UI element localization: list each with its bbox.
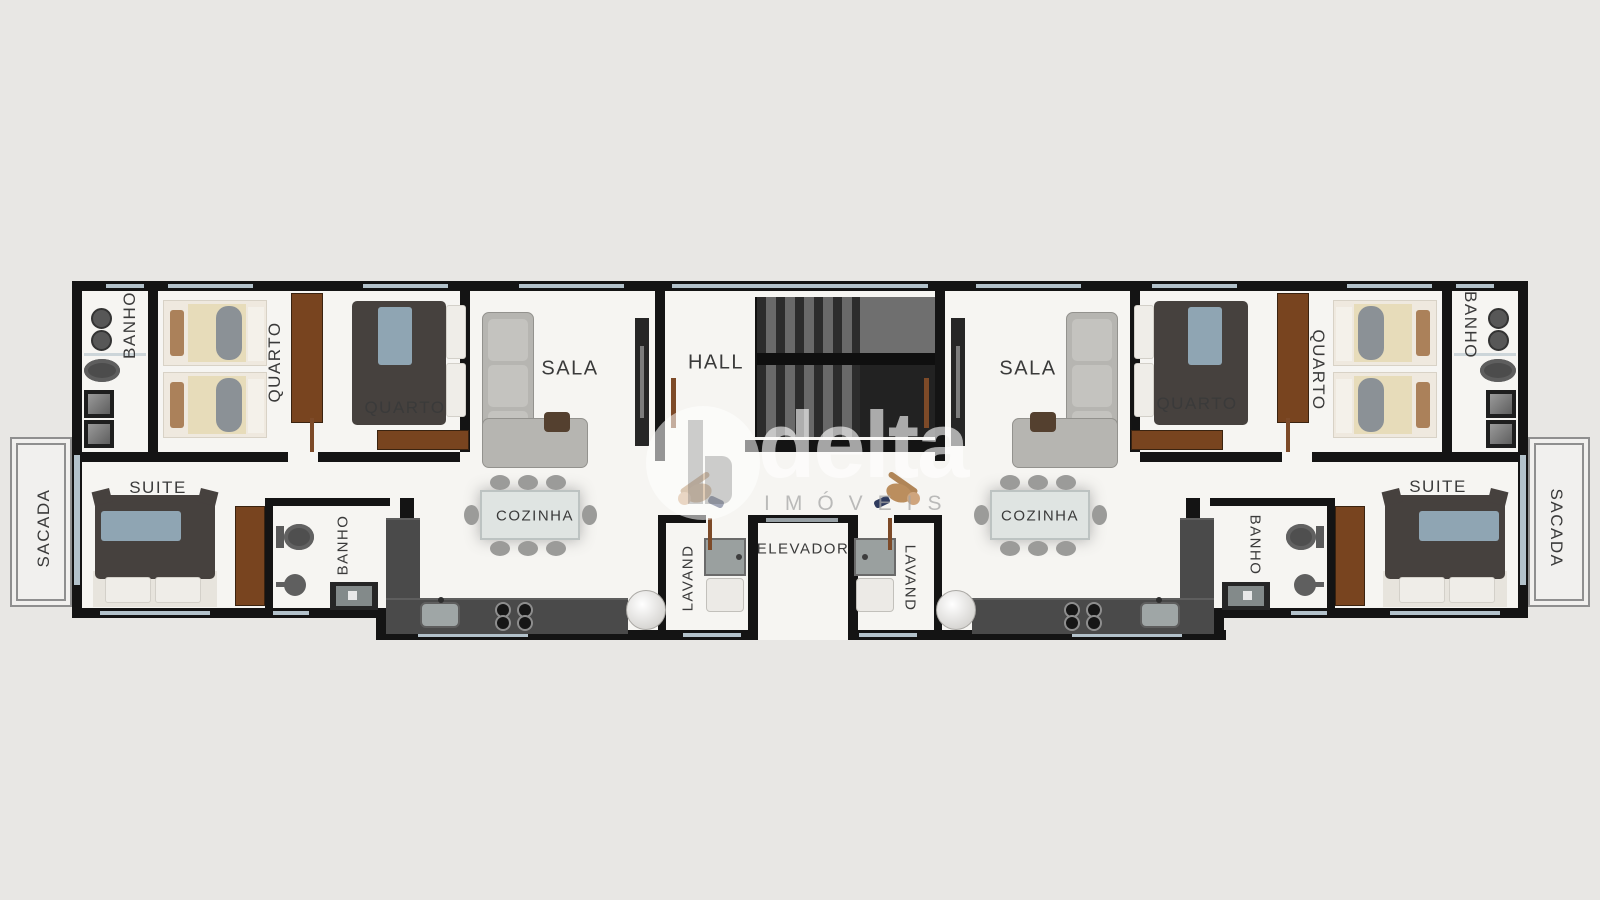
room-label-sacada-right: SACADA [1546, 489, 1566, 568]
window [168, 284, 253, 288]
room-label-hall: HALL [688, 352, 744, 375]
shower-box [330, 582, 378, 610]
cooktop-burner [519, 604, 531, 616]
window [1152, 284, 1237, 288]
toilet [284, 524, 314, 550]
suite-bed-left [93, 495, 217, 607]
room-label-sala-right: SALA [999, 358, 1056, 381]
room-label-lavand-right: LAVAND [902, 545, 919, 612]
room-label-banho-top-left: BANHO [120, 291, 140, 359]
dining-chair [518, 541, 538, 556]
balcony-door-left [74, 455, 80, 585]
room-label-lavand-left: LAVAND [680, 545, 697, 612]
door-leaf [888, 518, 892, 550]
delta-logo-icon [646, 406, 760, 520]
wall-kitchen-stub-right [1186, 498, 1200, 520]
window [273, 611, 309, 615]
toilet-tank [1316, 526, 1324, 548]
kitchen-sink-right [1140, 602, 1180, 628]
sink-bowl [1488, 330, 1509, 351]
door-leaf [310, 418, 314, 452]
wall-suite-banho-left [265, 498, 273, 610]
twin-bed [1333, 372, 1437, 438]
wardrobe-suite-right [1335, 506, 1365, 606]
wall-mid-right-b [1140, 452, 1282, 462]
kitchen-sink-left [420, 602, 460, 628]
toilet [84, 359, 120, 382]
shower-box [84, 390, 114, 418]
dining-chair [546, 475, 566, 490]
window [1456, 284, 1494, 288]
wall-twin-banho-right [1442, 291, 1452, 452]
wall-elevator-right [848, 515, 858, 640]
dining-chair [1000, 475, 1020, 490]
wardrobe-left [291, 293, 323, 423]
dresser-left [377, 430, 469, 450]
faucet [438, 597, 444, 603]
window [363, 284, 448, 288]
dining-chair [1056, 475, 1076, 490]
cooktop-burner [1066, 617, 1078, 629]
kitchen-counter-right-vertical [1180, 518, 1214, 604]
water-heater-right [936, 590, 976, 630]
stair-landing [860, 297, 935, 353]
room-label-cozinha-left: COZINHA [496, 508, 574, 525]
dining-chair [1092, 505, 1107, 525]
cooktop-burner [1066, 604, 1078, 616]
room-label-quarto-twin-right: QUARTO [1308, 329, 1328, 410]
sink-bowl [91, 330, 112, 351]
tv-panel-left [635, 318, 649, 446]
wall-mid-left-b [318, 452, 460, 462]
elevator-door [766, 518, 838, 522]
cooktop-burner [1088, 604, 1100, 616]
wardrobe-right [1277, 293, 1309, 423]
window [976, 284, 1081, 288]
dining-chair [518, 475, 538, 490]
window [1390, 611, 1500, 615]
wall-banho-twin-left [148, 291, 158, 452]
room-label-quarto-double-left: QUARTO [364, 398, 445, 418]
dining-chair [582, 505, 597, 525]
window [100, 611, 210, 615]
room-label-banho-suite-right: BANHO [1247, 515, 1264, 576]
toilet [1286, 524, 1316, 550]
dresser-right [1131, 430, 1223, 450]
room-label-sala-left: SALA [541, 358, 598, 381]
sink-bowl [1488, 308, 1509, 329]
wall-kitchen-stub-left [400, 498, 414, 520]
shower-box [1486, 420, 1516, 448]
pedestal-sink [284, 574, 306, 596]
twin-bed [163, 372, 267, 438]
dining-chair [974, 505, 989, 525]
sofa-chaise-left [482, 418, 588, 468]
window [1291, 611, 1327, 615]
watermark-tagline: IMÓVEIS [764, 492, 957, 516]
sink-bowl [91, 308, 112, 329]
wall-mid-right-a [1312, 452, 1518, 462]
wall-banho-suite-top-left [265, 498, 390, 506]
dining-chair [1000, 541, 1020, 556]
sofa-cushion [544, 412, 570, 432]
pedestal-sink [1294, 574, 1316, 596]
dining-chair [490, 541, 510, 556]
twin-bed [163, 300, 267, 366]
stair-flight-upper [757, 297, 860, 353]
cooktop-burner [1088, 617, 1100, 629]
wall-banho-suite-top-right [1210, 498, 1335, 506]
kitchen-counter-left-vertical [386, 518, 420, 604]
laundry-sink-right [856, 578, 894, 612]
watermark-brand: delta [758, 398, 967, 492]
sofa-chaise-right [1012, 418, 1118, 468]
room-label-suite-right: SUITE [1409, 477, 1467, 497]
faucet [1156, 597, 1162, 603]
dining-chair [1056, 541, 1076, 556]
window [859, 633, 917, 637]
shower-box [84, 420, 114, 448]
dining-chair [546, 541, 566, 556]
water-heater-left [626, 590, 666, 630]
dining-chair [1028, 541, 1048, 556]
dining-chair [1028, 475, 1048, 490]
pedestal-sink-arm [276, 582, 286, 587]
balcony-door-right [1520, 455, 1526, 585]
twin-bed [1333, 300, 1437, 366]
shower-box [1486, 390, 1516, 418]
room-label-banho-suite-left: BANHO [335, 515, 352, 576]
window [519, 284, 624, 288]
shower-box [1222, 582, 1270, 610]
room-label-cozinha-right: COZINHA [1001, 508, 1079, 525]
window [106, 284, 144, 288]
wall-suite-banho-right [1327, 498, 1335, 610]
suite-bed-right [1383, 495, 1507, 607]
cooktop-burner [497, 604, 509, 616]
room-label-sacada-left: SACADA [34, 489, 54, 568]
room-label-quarto-double-right: QUARTO [1156, 394, 1237, 414]
wall-elevator-left [748, 515, 758, 640]
cooktop-burner [519, 617, 531, 629]
window [683, 633, 741, 637]
pedestal-sink-arm [1314, 582, 1324, 587]
toilet-tank [276, 526, 284, 548]
cooktop-burner [497, 617, 509, 629]
sofa-cushion [1030, 412, 1056, 432]
window [783, 284, 928, 288]
room-label-banho-top-right: BANHO [1460, 291, 1480, 359]
room-label-quarto-twin-left: QUARTO [265, 321, 285, 402]
floor-plan: SACADA BANHO QUARTO QUARTO SALA HALL SAL… [0, 0, 1600, 900]
door-leaf [1286, 418, 1290, 452]
dining-chair [490, 475, 510, 490]
laundry-sink-left [706, 578, 744, 612]
room-label-elevador: ELEVADOR [757, 541, 850, 558]
wall-mid-left-a [82, 452, 288, 462]
room-label-suite-left: SUITE [129, 478, 187, 498]
door-leaf [708, 518, 712, 550]
toilet [1480, 359, 1516, 382]
dining-chair [464, 505, 479, 525]
window [1347, 284, 1432, 288]
wardrobe-suite-left [235, 506, 265, 606]
